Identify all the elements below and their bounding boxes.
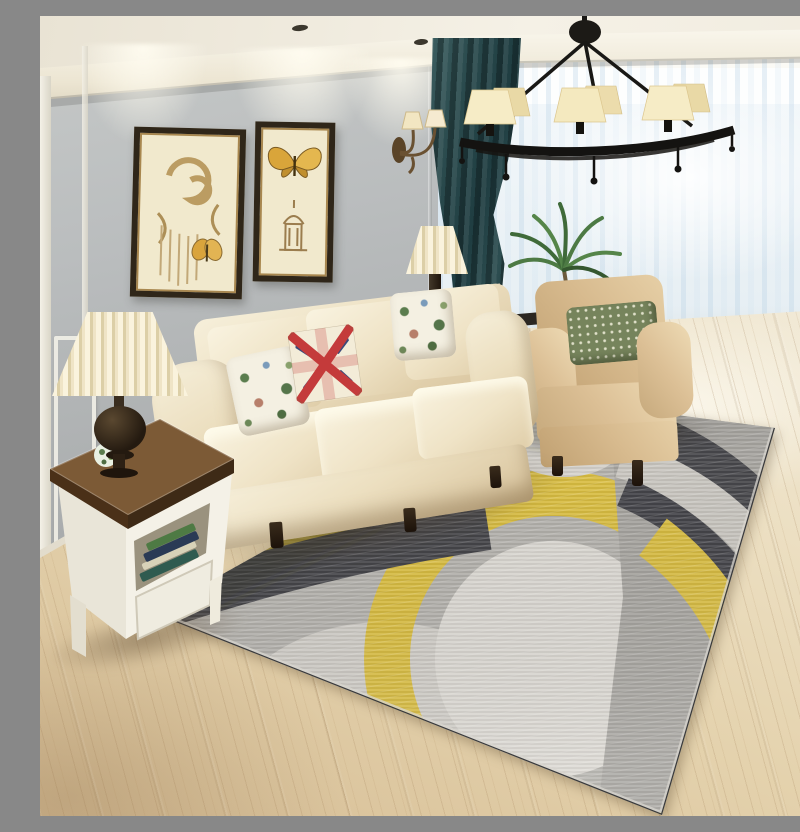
small-butterfly-icon <box>189 236 226 264</box>
wall-art-butterfly-tower <box>253 121 336 282</box>
union-jack-cushion <box>287 324 362 404</box>
living-room-photo: Living room product photograph: modern g… <box>40 16 800 816</box>
armchair-leg <box>632 460 643 486</box>
butterfly-icon <box>268 147 321 178</box>
armchair-right-arm <box>636 321 695 420</box>
table-lamp-foot <box>100 468 138 478</box>
side-table <box>42 411 238 659</box>
scroll-butterfly-art <box>136 133 240 294</box>
sofa-leg <box>269 522 284 549</box>
sofa-leg <box>403 508 417 533</box>
table-lamp-body <box>94 406 146 452</box>
sofa-leg <box>489 466 502 489</box>
chandelier <box>446 16 746 188</box>
floral-cushion-right <box>389 288 457 361</box>
side-table-graphic <box>42 411 238 659</box>
wall-art-scroll-butterfly <box>130 127 246 300</box>
butterfly-tower-art <box>259 127 330 276</box>
wall-trim-strip <box>82 46 88 336</box>
tower-sketch <box>279 200 308 250</box>
